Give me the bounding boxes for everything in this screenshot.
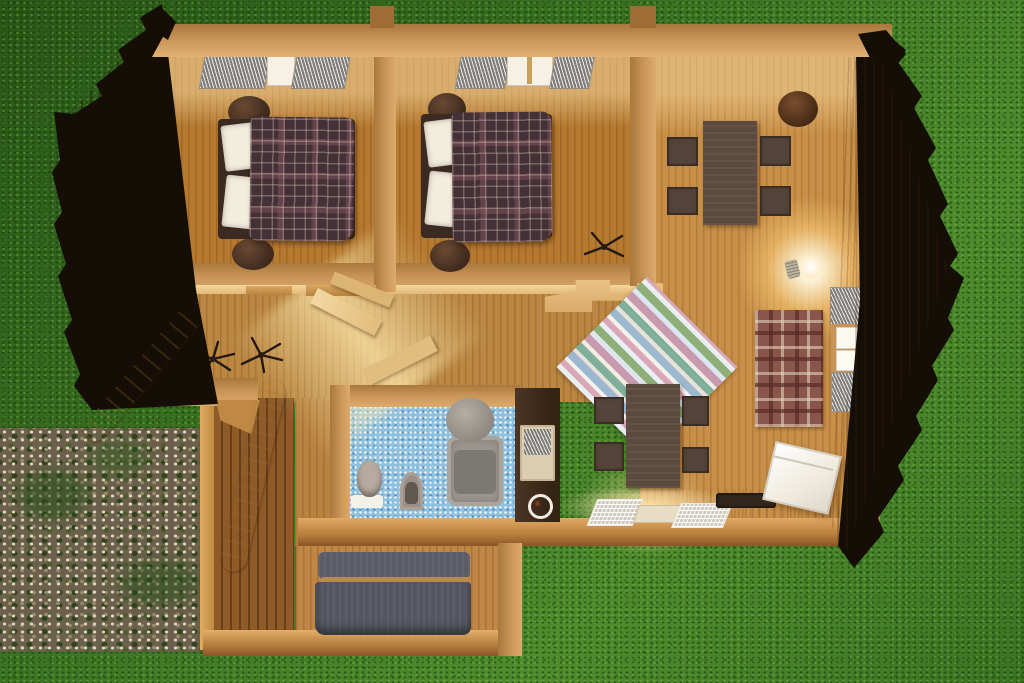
bedroom1-window-shade-left xyxy=(199,52,272,89)
chair xyxy=(760,136,791,166)
chair xyxy=(760,186,791,216)
ceiling-fan-icon xyxy=(238,336,284,374)
bedroom2-window-shade-right xyxy=(549,56,595,89)
white-ring-hob xyxy=(528,494,553,519)
top-wall-stub-right xyxy=(630,6,656,28)
bedroom2-window-gap-divider xyxy=(527,56,532,84)
porch-right-wall xyxy=(498,543,522,656)
bedroom1-nightstand-bottom xyxy=(232,238,274,270)
bathtub-inner xyxy=(454,450,496,494)
lamp-bulb xyxy=(800,256,822,278)
chair xyxy=(682,447,709,473)
floor-plan-render xyxy=(0,0,1024,683)
bedroom1-window-gap xyxy=(267,55,295,86)
barrel-stool xyxy=(778,91,818,127)
wall-between-bedrooms xyxy=(374,24,396,292)
bedroom1-window-shade-right xyxy=(291,53,351,89)
tartan-rug xyxy=(755,310,823,427)
bathroom-top-wall xyxy=(330,385,520,407)
ceiling-fan-icon xyxy=(582,230,626,264)
bathroom-left-wall xyxy=(330,385,350,525)
cabinet-oven-window xyxy=(524,429,551,455)
gravel-moss-blob xyxy=(120,560,200,606)
pedestal-sink-bowl xyxy=(405,482,418,504)
bedroom2-nightstand-bottom xyxy=(430,240,470,272)
chair xyxy=(594,397,624,424)
wall-bedroom2-living xyxy=(630,24,656,286)
door-lintel-small xyxy=(246,286,292,295)
top-wall-beam xyxy=(152,24,892,57)
chair xyxy=(667,187,698,215)
gravel-moss-blob xyxy=(18,470,88,520)
chair xyxy=(667,137,698,166)
bedroom1-plaid-blanket xyxy=(249,116,354,241)
sofa-back xyxy=(318,552,470,579)
extension-roof-edge xyxy=(200,404,214,650)
bedroom2-window-shade-left xyxy=(455,53,511,89)
gravel-moss-blob xyxy=(90,440,150,476)
chair xyxy=(682,396,709,426)
white-ring-center xyxy=(535,501,540,506)
dining-table-upper xyxy=(703,121,757,225)
top-wall-stub-left xyxy=(370,6,394,28)
shower-head xyxy=(446,398,494,442)
chair xyxy=(594,442,624,471)
toilet xyxy=(357,460,382,497)
sofa-seat xyxy=(315,582,471,635)
dining-table-lower xyxy=(626,384,680,488)
bedroom2-plaid-blanket xyxy=(451,111,552,242)
bottom-wall-main xyxy=(298,518,864,546)
